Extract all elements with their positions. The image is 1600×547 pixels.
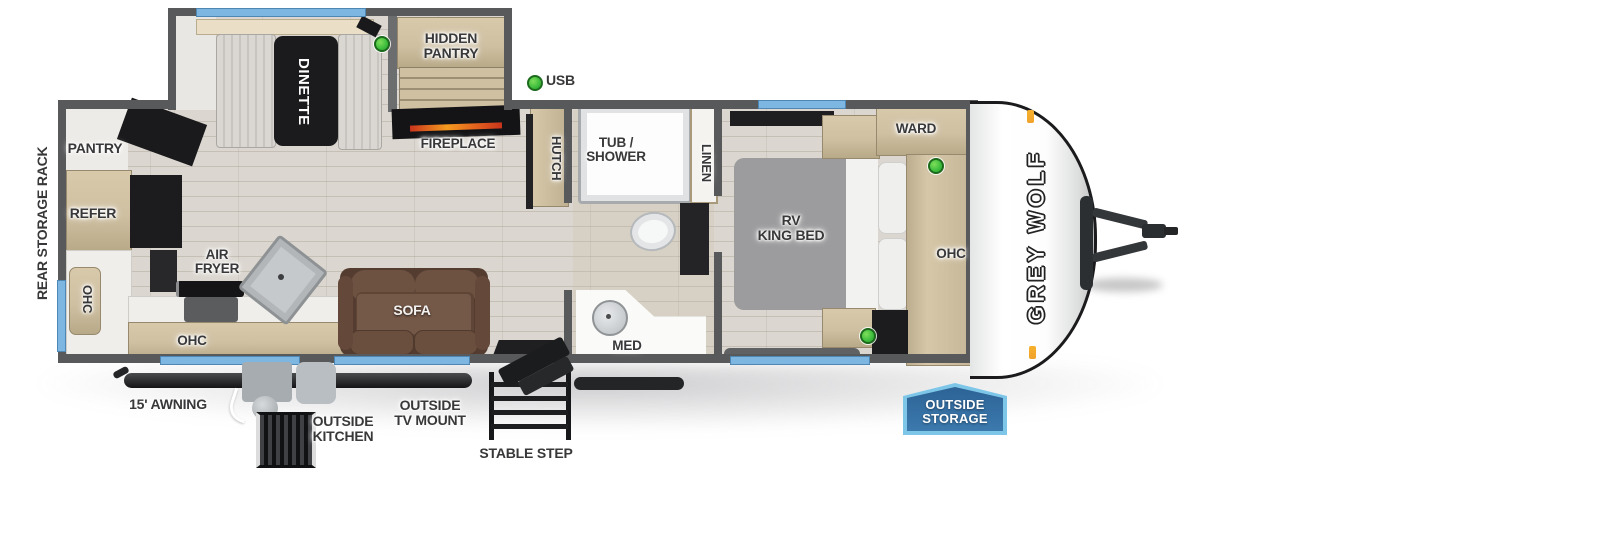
awning-label: 15' AWNING (118, 397, 218, 412)
bedroom-tv-shelf (730, 111, 834, 126)
bedroom-ohc-label: OHC (921, 247, 981, 261)
hutch-label: HUTCH (543, 127, 563, 189)
dinette-shelf (196, 19, 374, 35)
dinette-bench-left (216, 34, 276, 148)
dinette-bench-right (338, 34, 382, 150)
stove-cooktop (176, 281, 244, 297)
oven-front (184, 297, 238, 322)
bathroom-pocket-door (680, 203, 709, 275)
marker-light-bottom (1029, 346, 1036, 359)
top-wall-right-segment (504, 100, 978, 109)
ward-label: WARD (886, 122, 946, 136)
step-rung-2 (491, 396, 568, 401)
top-wall-left-segment (58, 100, 176, 109)
bedroom-wall-lower (714, 252, 722, 356)
ward-corner-cabinet (822, 115, 880, 159)
hutch-edge (526, 114, 533, 209)
air-fryer-appliance (150, 250, 177, 292)
marker-light-top (1027, 110, 1034, 123)
hitch-coupler (1142, 224, 1166, 238)
sink-drain (278, 274, 284, 280)
bed-pillow-bottom (878, 238, 908, 310)
vanity-sink-drain (606, 314, 611, 319)
bed-sheet (846, 158, 878, 310)
fireplace-label: FIREPLACE (408, 137, 508, 151)
floorplan-canvas: DINETTE HIDDENPANTRY SOFA (0, 0, 1600, 547)
sofa-label: SOFA (382, 303, 442, 318)
refer-label: REFER (63, 206, 123, 221)
step-rung-4 (491, 424, 568, 429)
brand-logo: GREY WOLF (1024, 142, 1058, 332)
rear-window (57, 280, 66, 352)
slideout-divider (388, 14, 397, 112)
stable-step-label: STABLE STEP (476, 446, 576, 461)
sofa-arm-right (475, 276, 490, 350)
step-rung-3 (491, 410, 568, 415)
bedroom-foot-chest (872, 310, 908, 356)
sofa-seat-left (350, 330, 414, 355)
sofa-seat-right (414, 330, 478, 355)
rear-rack-label: REAR STORAGE RACK (35, 148, 55, 300)
outside-storage-label: OUTSIDESTORAGE (903, 398, 1007, 426)
rear-ohc-label: OHC (74, 268, 94, 330)
hitch-frame-upper (1092, 207, 1149, 229)
usb-dot-dinette (374, 36, 390, 52)
hitch-coupler-tip (1164, 227, 1178, 235)
hitch-shadow (1085, 278, 1163, 292)
bedroom-bottom-window (730, 356, 870, 365)
bedroom-top-window (758, 100, 846, 109)
bed-label: RVKING BED (741, 213, 841, 243)
sofa-window (334, 356, 470, 365)
bedroom-wall-upper (714, 108, 722, 196)
tongue-jack (1080, 196, 1093, 290)
hidden-pantry-label: HIDDENPANTRY (401, 31, 501, 61)
usb-dot-bed (860, 328, 876, 344)
usb-dot-legend (527, 75, 543, 91)
slideout-window (196, 8, 366, 17)
outside-kitchen-unit-right (296, 362, 336, 404)
outside-tv-label: OUTSIDETV MOUNT (385, 398, 475, 428)
slideout-wall-left (168, 8, 176, 110)
kitchen-ohc-label: OHC (162, 334, 222, 348)
bed-pillow-top (878, 162, 908, 234)
outside-kitchen-label: OUTSIDEKITCHEN (298, 414, 388, 444)
med-label: MED (597, 339, 657, 353)
bath-wall-left-upper (564, 108, 572, 203)
usb-label: USB (546, 73, 586, 88)
air-fryer-label: AIRFRYER (182, 248, 252, 277)
refer-front (130, 175, 182, 248)
hitch-frame-lower (1092, 240, 1149, 262)
assist-handle (574, 377, 684, 390)
linen-label: LINEN (693, 134, 713, 192)
slideout-wall-right (504, 8, 512, 110)
usb-dot-ward (928, 158, 944, 174)
sofa-arm-left (338, 276, 353, 350)
tub-shower-label: TUB /SHOWER (576, 136, 656, 165)
pantry-label: PANTRY (65, 141, 125, 156)
dinette-label: DINETTE (295, 52, 311, 132)
